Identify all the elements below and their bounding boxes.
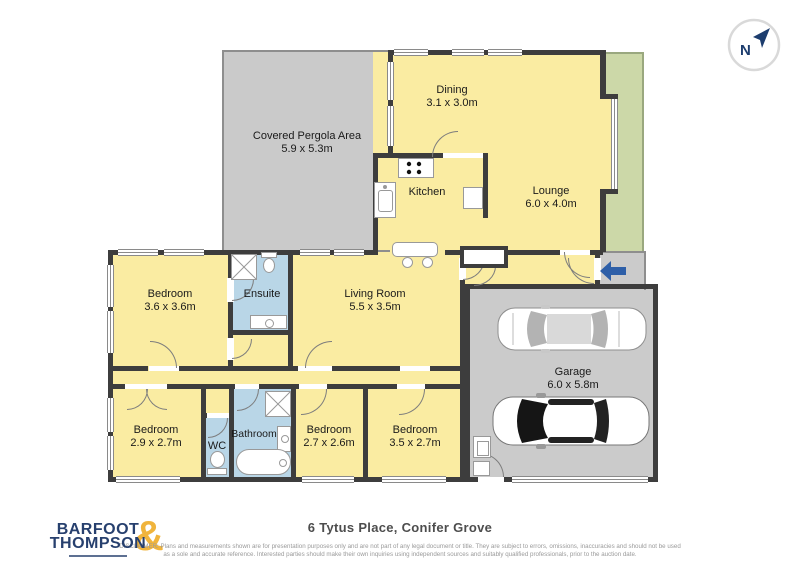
toilet-ensuite-bowl [263,258,275,273]
wall-segment [508,250,560,255]
window [382,476,446,483]
outline-line [222,50,390,52]
wall-segment [460,284,470,482]
plan-element: Bathroom [231,428,277,441]
car-top [497,305,647,353]
laundry-appliance [473,461,490,476]
toilet-wc-tank [207,468,227,475]
outline-line [642,52,644,252]
shower-bathroom [265,391,291,417]
kitchen-sink [374,182,396,218]
room-label-pergola: Covered Pergola Area5.9 x 5.3m [253,130,361,156]
compass-n-label: N [740,42,751,59]
wall-segment [600,194,606,252]
wall-segment [425,384,465,389]
window [334,249,364,256]
room-label-bedroom-4: Bedroom3.5 x 2.7m [389,424,440,450]
plan-element: 5.5 x 3.5m [344,301,405,314]
wall-segment [201,384,206,482]
wall-segment [595,250,600,258]
wall-segment [354,477,382,482]
wall-segment [228,360,233,371]
plan-element: 6.0 x 5.8m [547,379,598,392]
plan-element: Ensuite [244,288,281,301]
compass-icon: N [727,18,781,72]
window [107,436,114,470]
plan-element: Garage [547,366,598,379]
wall-segment [179,366,298,371]
wall-segment [228,330,293,335]
plan-element: Dining [426,84,477,97]
window [452,49,484,56]
laundry-tub [473,436,491,458]
bay-window [611,99,618,189]
plan-element: Lounge [525,185,576,198]
plan-element: 6.0 x 4.0m [525,198,576,211]
window [118,249,158,256]
room-label-bathroom: Bathroom [231,428,277,441]
room-label-ensuite: Ensuite [244,288,281,301]
plan-element: Bedroom [303,424,354,437]
plan-element [279,459,287,467]
plan-element: 5.9 x 5.3m [253,143,361,156]
hall-closet [460,246,508,268]
window [107,311,114,353]
plan-element [383,185,387,189]
stool [422,257,433,268]
window [107,398,114,432]
plan-element [378,190,393,212]
window [387,62,394,100]
wall-segment [504,477,512,482]
plan-element [399,159,433,177]
vanity-ensuite [250,315,287,329]
wall-segment [363,384,368,482]
room-label-wc: WC [208,440,226,453]
wall-segment [483,153,488,218]
wall-segment [291,384,296,482]
stool [402,257,413,268]
wall-segment [288,250,293,371]
plan-element: 2.7 x 2.6m [303,437,354,450]
plan-element: Bedroom [130,424,181,437]
wall-segment [108,250,113,265]
window [387,106,394,146]
stove [398,158,434,178]
window [164,249,204,256]
room-label-dining: Dining3.1 x 3.0m [426,84,477,110]
room-label-garage: Garage6.0 x 5.8m [547,366,598,392]
outline-line [222,50,224,252]
plan-element [477,441,489,456]
window [116,476,180,483]
wall-segment [332,366,400,371]
wall-segment [430,366,462,371]
window [302,476,354,483]
wall-segment [364,250,378,255]
wall-segment [108,470,113,482]
wall-segment [600,50,606,99]
room-label-kitchen: Kitchen [409,186,446,199]
door-opening [400,366,430,371]
logo-line-2: THOMPSON [42,537,154,551]
window [300,249,330,256]
plan-element [281,435,289,443]
wall-segment [388,50,393,62]
plan-element: Bedroom [144,288,195,301]
wall-segment [180,477,302,482]
room-label-bedroom-3: Bedroom2.7 x 2.6m [303,424,354,450]
plan-element: Kitchen [409,186,446,199]
plan-element: WC [208,440,226,453]
window [107,265,114,307]
plan-element: 3.6 x 3.6m [144,301,195,314]
window [394,49,428,56]
room-label-bedroom-2: Bedroom2.9 x 2.7m [130,424,181,450]
plan-element: Bedroom [389,424,440,437]
plan-element: Living Room [344,288,405,301]
plan-element: 2.9 x 2.7m [130,437,181,450]
wall-segment [108,353,113,398]
plan-element: 3.1 x 3.0m [426,97,477,110]
window [488,49,522,56]
floor-plan-page: Covered Pergola Area5.9 x 5.3m Dining3.1… [0,0,800,584]
room-label-bedroom-1: Bedroom3.6 x 3.6m [144,288,195,314]
plan-element: 3.5 x 2.7m [389,437,440,450]
room-label-living-room: Living Room5.5 x 3.5m [344,288,405,314]
pantry [463,187,483,209]
plan-element: Covered Pergola Area [253,130,361,143]
entry-arrow-icon [600,261,626,281]
wall-segment [327,384,397,389]
wall-segment [108,366,148,371]
shower-ensuite [231,254,257,280]
wall-segment [595,280,600,289]
car-bottom [492,393,650,449]
wall-segment [460,284,658,289]
bathtub [236,449,291,475]
wall-segment [388,146,393,158]
outline-line [603,52,644,54]
compass-circle [727,18,781,72]
room-label-lounge: Lounge6.0 x 4.0m [525,185,576,211]
plan-element [265,319,274,328]
toilet-wc-bowl [210,451,225,468]
barfoot-thompson-logo: & BARFOOT THOMPSON [42,523,154,557]
kitchen-island [392,242,438,257]
garage-door [512,476,648,483]
door-opening [478,477,504,482]
wall-segment [228,302,233,338]
wall-segment [653,284,658,482]
